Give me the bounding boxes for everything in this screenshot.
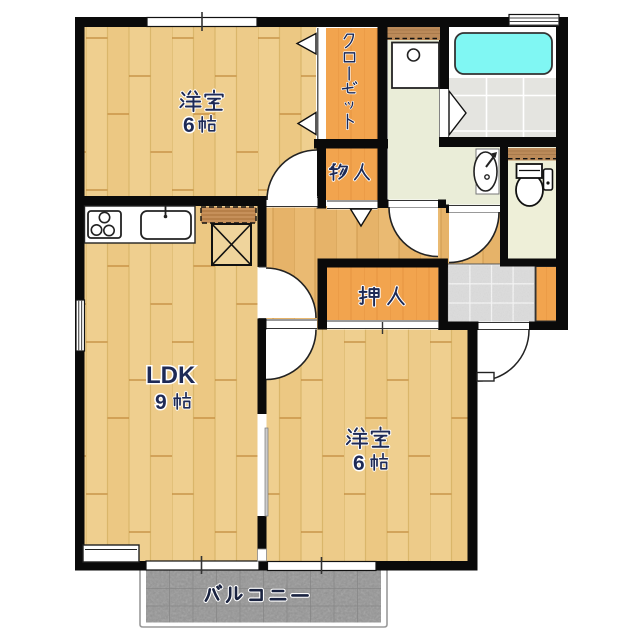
svg-text:9: 9: [155, 391, 167, 414]
svg-text:6: 6: [183, 114, 195, 137]
svg-text:LDK: LDK: [146, 362, 196, 389]
svg-text:6: 6: [353, 452, 365, 475]
